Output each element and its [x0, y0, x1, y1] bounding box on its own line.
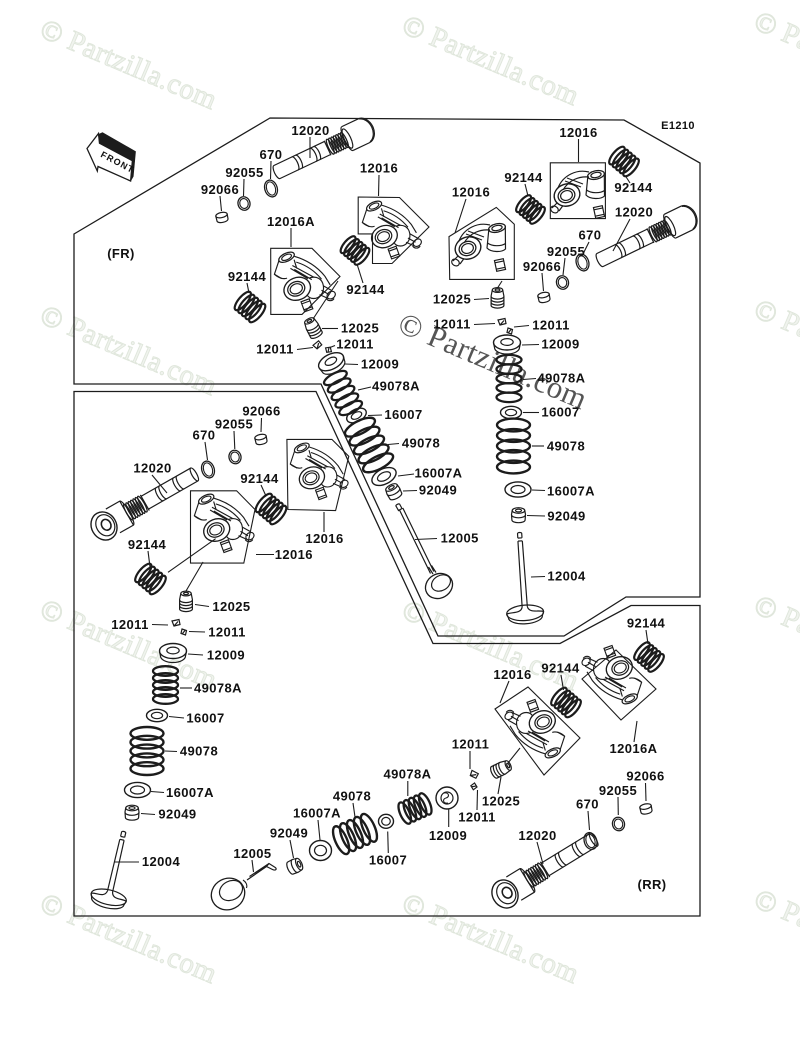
svg-text:12016: 12016 — [559, 125, 597, 140]
svg-text:92066: 92066 — [523, 259, 561, 274]
svg-text:12004: 12004 — [547, 569, 586, 584]
svg-text:12016A: 12016A — [610, 741, 658, 756]
svg-text:12016A: 12016A — [267, 214, 315, 229]
svg-text:49078A: 49078A — [372, 379, 420, 394]
svg-text:12016: 12016 — [275, 547, 313, 562]
svg-text:92066: 92066 — [626, 769, 664, 784]
svg-text:92066: 92066 — [242, 404, 280, 419]
svg-text:12016: 12016 — [452, 185, 490, 200]
svg-text:670: 670 — [576, 797, 599, 812]
svg-text:12004: 12004 — [142, 854, 181, 869]
svg-text:12009: 12009 — [541, 337, 579, 352]
svg-text:12011: 12011 — [452, 737, 489, 752]
svg-text:12016: 12016 — [493, 667, 531, 682]
svg-text:E1210: E1210 — [661, 120, 695, 132]
svg-text:12020: 12020 — [133, 461, 171, 476]
svg-text:12011: 12011 — [532, 318, 569, 333]
svg-text:12011: 12011 — [458, 810, 495, 825]
svg-text:92055: 92055 — [225, 165, 263, 180]
svg-text:92144: 92144 — [541, 661, 580, 676]
svg-text:49078: 49078 — [547, 439, 585, 454]
svg-text:92144: 92144 — [228, 269, 267, 284]
svg-text:12009: 12009 — [429, 828, 467, 843]
svg-text:670: 670 — [260, 147, 283, 162]
svg-text:92055: 92055 — [215, 417, 253, 432]
svg-text:12020: 12020 — [518, 828, 556, 843]
svg-text:12011: 12011 — [433, 317, 470, 332]
svg-text:92144: 92144 — [504, 170, 543, 185]
svg-text:(RR): (RR) — [637, 877, 666, 892]
svg-text:12020: 12020 — [291, 123, 329, 138]
svg-text:92055: 92055 — [599, 783, 637, 798]
svg-text:49078A: 49078A — [384, 767, 432, 782]
svg-text:92049: 92049 — [158, 807, 196, 822]
svg-text:92144: 92144 — [240, 471, 279, 486]
svg-text:12016: 12016 — [360, 161, 398, 176]
svg-text:12005: 12005 — [233, 846, 271, 861]
svg-text:92066: 92066 — [201, 182, 239, 197]
svg-text:49078: 49078 — [402, 436, 440, 451]
svg-text:92144: 92144 — [614, 180, 653, 195]
svg-text:12011: 12011 — [111, 617, 148, 632]
svg-text:16007A: 16007A — [166, 785, 214, 800]
svg-text:16007: 16007 — [541, 405, 579, 420]
svg-text:12025: 12025 — [482, 794, 520, 809]
svg-text:16007: 16007 — [369, 853, 407, 868]
svg-text:16007: 16007 — [186, 711, 224, 726]
svg-text:16007: 16007 — [384, 407, 422, 422]
svg-text:12009: 12009 — [207, 648, 245, 663]
svg-text:49078A: 49078A — [538, 371, 586, 386]
svg-text:16007A: 16007A — [415, 466, 463, 481]
svg-text:49078: 49078 — [180, 744, 218, 759]
svg-text:16007A: 16007A — [547, 484, 595, 499]
svg-text:92055: 92055 — [547, 244, 585, 259]
svg-text:92049: 92049 — [547, 509, 585, 524]
svg-text:49078A: 49078A — [194, 681, 242, 696]
svg-text:(FR): (FR) — [107, 246, 135, 261]
svg-text:92049: 92049 — [419, 483, 457, 498]
svg-text:12025: 12025 — [212, 599, 250, 614]
svg-text:12011: 12011 — [208, 625, 245, 640]
svg-text:12011: 12011 — [256, 342, 293, 357]
svg-text:12025: 12025 — [341, 321, 379, 336]
svg-text:12020: 12020 — [615, 205, 653, 220]
svg-text:12025: 12025 — [433, 292, 471, 307]
svg-text:92144: 92144 — [128, 537, 167, 552]
svg-text:92144: 92144 — [346, 282, 385, 297]
svg-text:670: 670 — [579, 228, 602, 243]
svg-text:92144: 92144 — [627, 616, 666, 631]
svg-text:12009: 12009 — [361, 357, 399, 372]
svg-text:12011: 12011 — [336, 337, 373, 352]
svg-text:12016: 12016 — [305, 531, 343, 546]
svg-text:49078: 49078 — [333, 789, 371, 804]
svg-text:12005: 12005 — [441, 531, 479, 546]
svg-text:670: 670 — [193, 428, 216, 443]
svg-text:16007A: 16007A — [293, 806, 341, 821]
svg-text:92049: 92049 — [270, 826, 308, 841]
